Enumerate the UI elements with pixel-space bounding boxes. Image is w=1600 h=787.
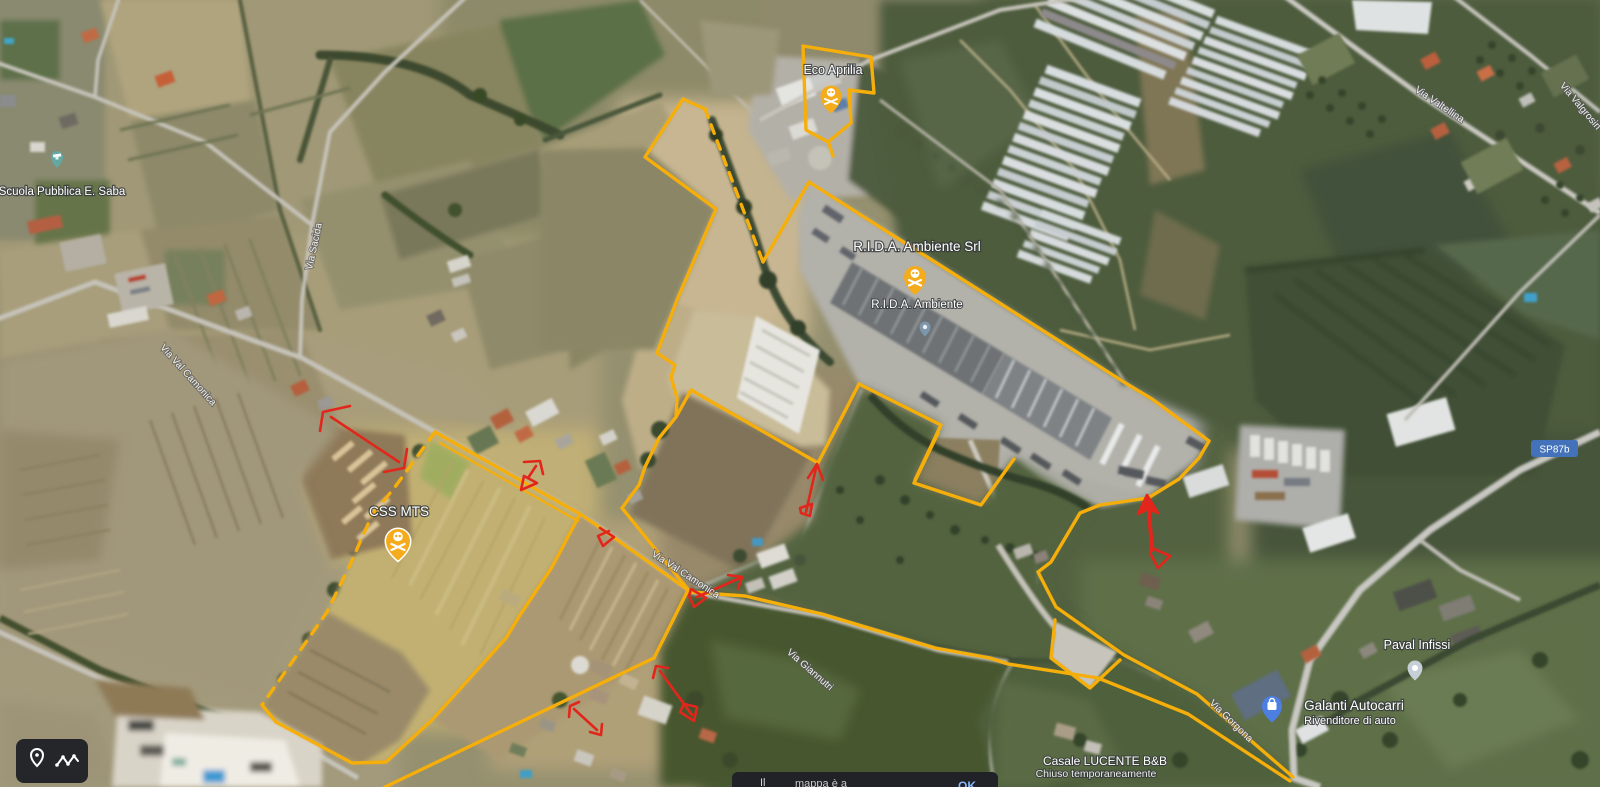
svg-text:CSS MTS: CSS MTS: [369, 504, 429, 519]
svg-text:Galanti Autocarri: Galanti Autocarri: [1304, 698, 1404, 713]
svg-text:Chiuso temporaneamente: Chiuso temporaneamente: [1036, 768, 1157, 780]
svg-text:mappa è a: mappa è a: [795, 778, 848, 787]
svg-text:Scuola Pubblica E. Saba: Scuola Pubblica E. Saba: [0, 186, 126, 198]
svg-text:Rivenditore di auto: Rivenditore di auto: [1304, 715, 1396, 727]
svg-text:Casale LUCENTE B&B: Casale LUCENTE B&B: [1043, 754, 1167, 768]
svg-text:SP87b: SP87b: [1539, 445, 1569, 456]
svg-text:R.I.D.A. Ambiente Srl: R.I.D.A. Ambiente Srl: [853, 239, 981, 254]
svg-text:Il: Il: [760, 777, 766, 787]
svg-text:Paval Infissi: Paval Infissi: [1384, 638, 1451, 652]
svg-text:R.I.D.A. Ambiente: R.I.D.A. Ambiente: [871, 299, 962, 311]
svg-text:Eco Aprilia: Eco Aprilia: [803, 63, 862, 77]
svg-text:OK: OK: [958, 779, 976, 787]
